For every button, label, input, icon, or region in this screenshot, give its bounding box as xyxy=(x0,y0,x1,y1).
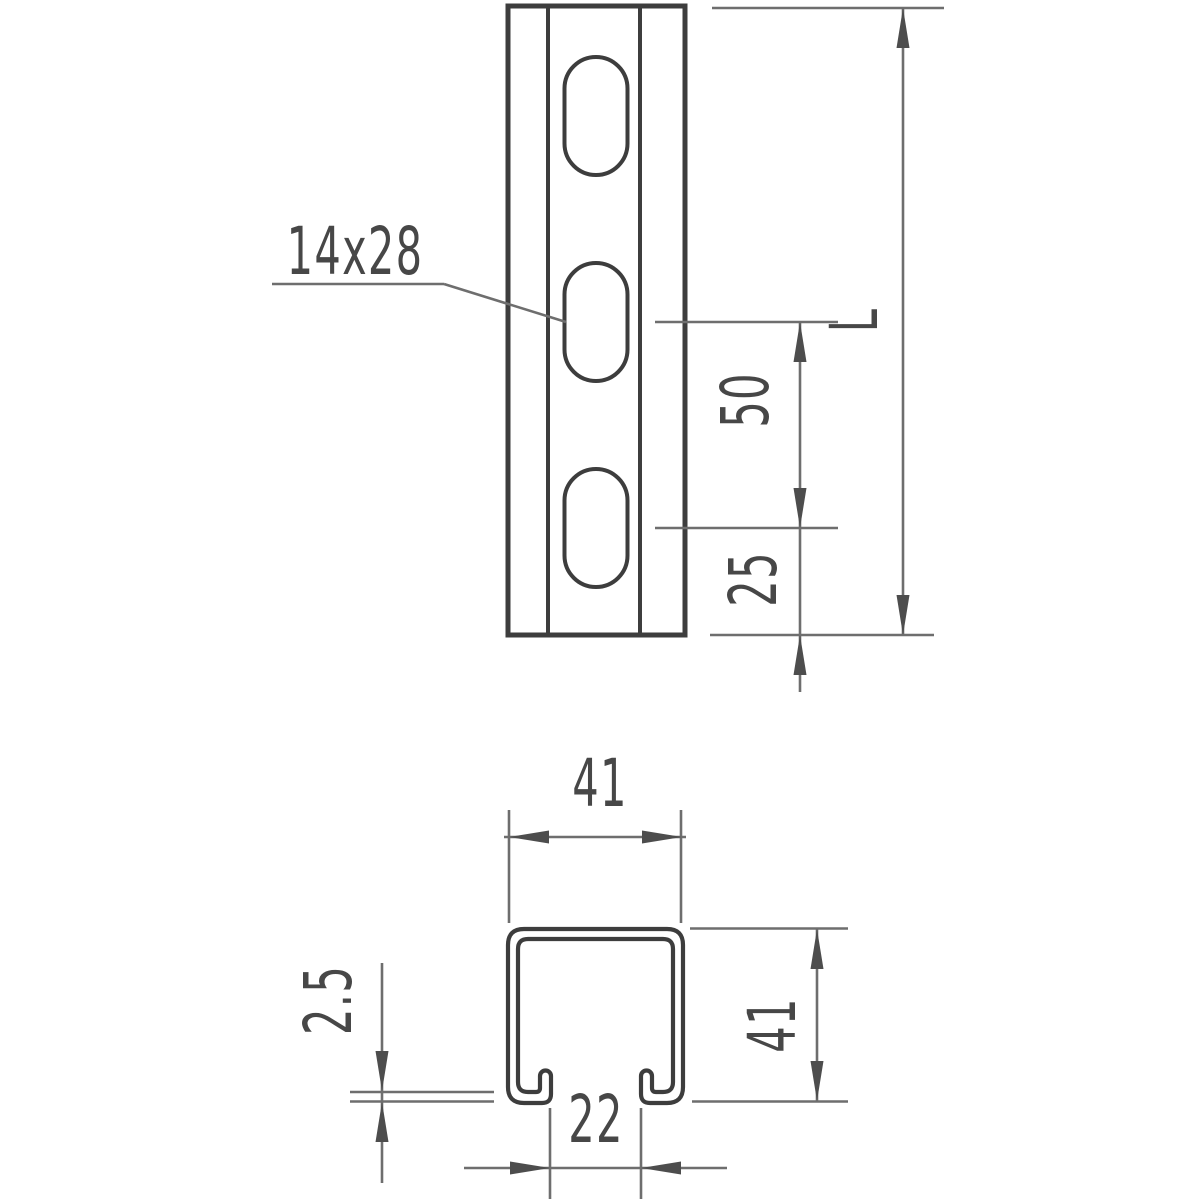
rail-outline xyxy=(508,6,685,635)
arrow-up-icon xyxy=(794,635,807,675)
arrow-left-icon xyxy=(641,1162,681,1175)
material-thickness-label: 2.5 xyxy=(291,965,368,1035)
arrow-up-icon xyxy=(794,322,807,362)
cross-section-view xyxy=(508,929,683,1103)
arrow-up-icon xyxy=(811,929,824,969)
slot-pitch-label: 50 xyxy=(708,372,785,427)
front-view-arrowheads xyxy=(794,8,910,675)
outer-width-label: 41 xyxy=(572,746,627,823)
channel-profile-outline xyxy=(508,929,683,1103)
front-view xyxy=(508,6,685,635)
arrow-right-icon xyxy=(510,1162,550,1175)
front-view-labels: 14x28 50 25 L xyxy=(287,214,894,607)
front-view-dimension-lines xyxy=(272,8,944,692)
arrow-right-icon xyxy=(642,831,682,844)
opening-width-label: 22 xyxy=(568,1082,623,1159)
arrow-down-icon xyxy=(794,488,807,528)
arrow-up-icon xyxy=(376,1102,389,1142)
slot-hole-top xyxy=(565,57,628,175)
arrow-down-icon xyxy=(897,595,910,635)
slot-hole-middle xyxy=(565,263,628,381)
technical-drawing: 14x28 50 25 L 41 41 2.5 22 xyxy=(0,0,1200,1200)
slot-hole-bottom xyxy=(565,469,628,587)
arrow-down-icon xyxy=(811,1061,824,1101)
length-label: L xyxy=(817,308,894,332)
slot-size-label: 14x28 xyxy=(287,214,424,291)
arrow-left-icon xyxy=(509,831,549,844)
drawing-canvas: 14x28 50 25 L 41 41 2.5 22 xyxy=(0,0,1200,1200)
arrow-down-icon xyxy=(376,1051,389,1091)
end-distance-label: 25 xyxy=(716,551,793,606)
arrow-up-icon xyxy=(897,8,910,48)
outer-height-label: 41 xyxy=(735,997,812,1052)
